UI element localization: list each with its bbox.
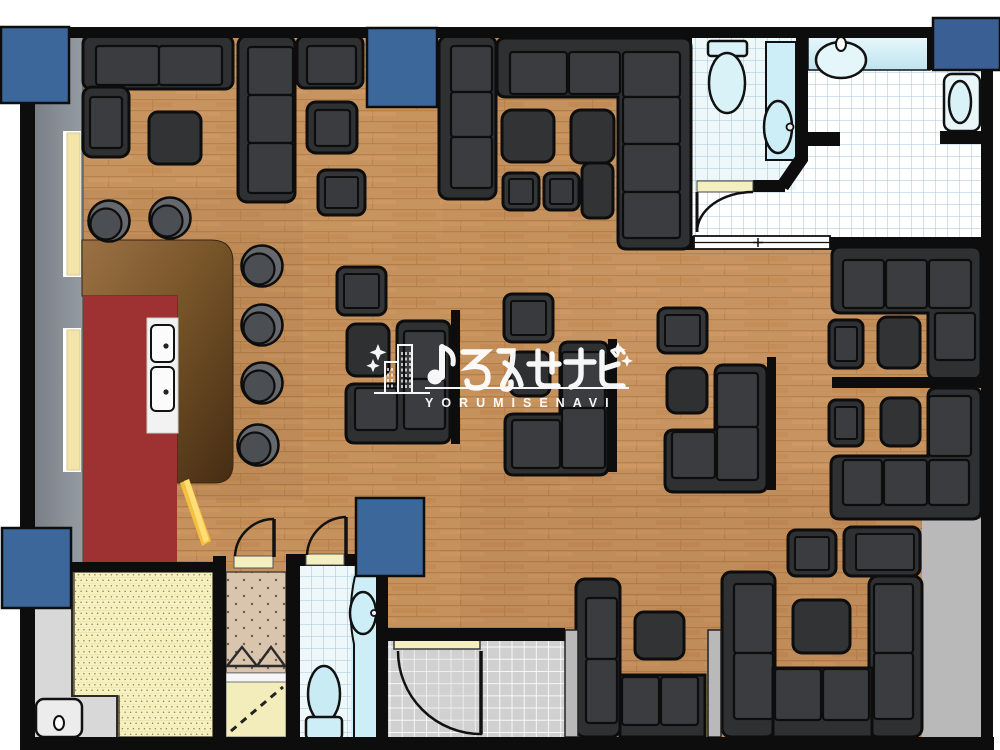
svg-text:YORUMISENAVI: YORUMISENAVI <box>425 396 617 410</box>
